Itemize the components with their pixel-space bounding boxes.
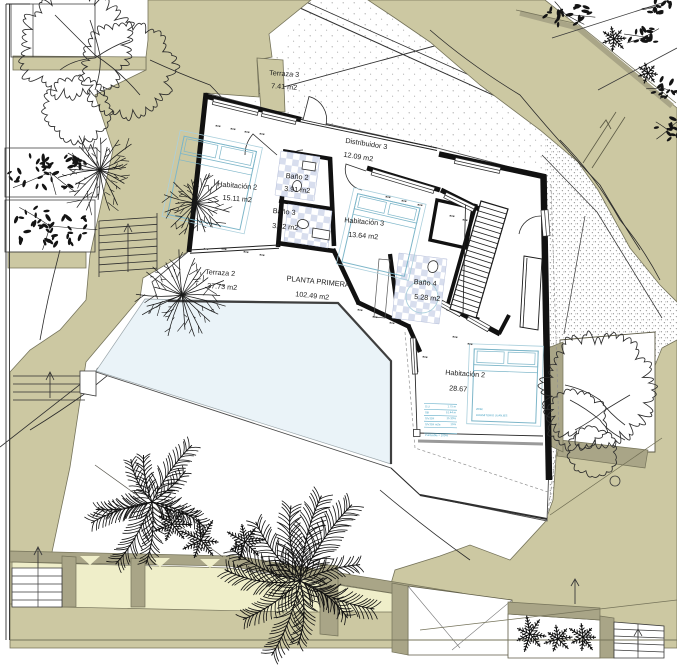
svg-text:15%: 15% bbox=[450, 422, 456, 426]
svg-text:DORMITORIO JUANJES: DORMITORIO JUANJES bbox=[476, 413, 508, 418]
svg-text:7.41 m2: 7.41 m2 bbox=[271, 81, 298, 92]
svg-text:15.30%: 15.30% bbox=[446, 416, 456, 420]
svg-text:S/V.GR m2e: S/V.GR m2e bbox=[425, 422, 441, 426]
svg-text:1.75 m: 1.75 m bbox=[447, 404, 456, 408]
svg-text:S/V.GR: S/V.GR bbox=[425, 416, 434, 420]
svg-text:28.67: 28.67 bbox=[449, 383, 468, 393]
svg-text:51.44 m: 51.44 m bbox=[446, 410, 457, 414]
svg-text:Puntuable = 100%: Puntuable = 100% bbox=[425, 433, 449, 437]
svg-text:SB: SB bbox=[425, 410, 429, 414]
svg-text:S.U: S.U bbox=[425, 405, 430, 409]
svg-text:203R: 203R bbox=[476, 407, 483, 411]
